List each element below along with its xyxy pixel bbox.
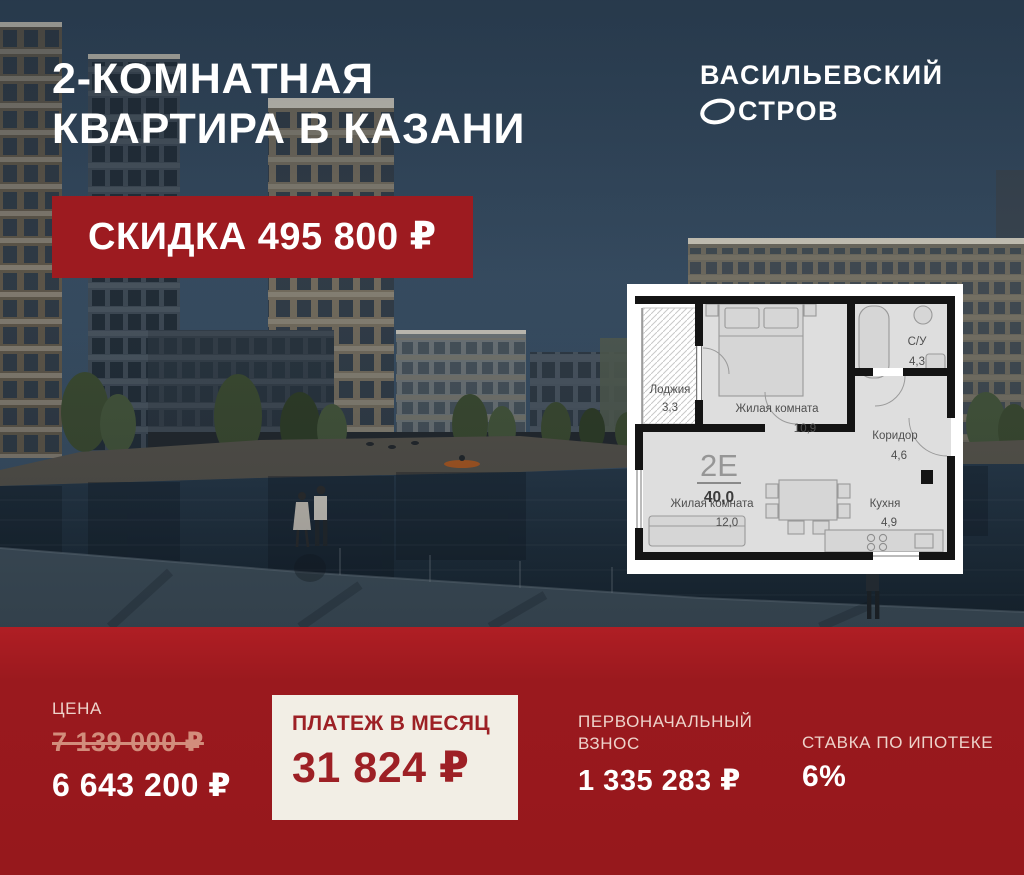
down-payment-label-line2: ВЗНОС: [578, 733, 752, 755]
total-area-label: 40,0: [704, 489, 734, 506]
title-line-2: КВАРТИРА В КАЗАНИ: [52, 104, 525, 154]
down-payment-label-line1: ПЕРВОНАЧАЛЬНЫЙ: [578, 711, 752, 733]
room-label-loggia: Лоджия: [650, 384, 691, 396]
new-price: 6 643 200 ₽: [52, 766, 231, 804]
logo-line-2-text: СТРОВ: [738, 96, 839, 127]
price-label: ЦЕНА: [52, 699, 231, 719]
mortgage-rate-label: СТАВКА ПО ИПОТЕКЕ: [802, 733, 993, 753]
banner: 2-КОМНАТНАЯ КВАРТИРА В КАЗАНИ ВАСИЛЬЕВСК…: [0, 0, 1024, 875]
room-area-bedroom: 10,9: [794, 423, 816, 435]
page-title: 2-КОМНАТНАЯ КВАРТИРА В КАЗАНИ: [52, 54, 525, 154]
mortgage-rate-value: 6%: [802, 760, 993, 794]
floor-plan: Лоджия 3,3 Жилая комната 10,9 С/У 4,3 Ко…: [627, 284, 963, 574]
monthly-payment-label: ПЛАТЕЖ В МЕСЯЦ: [292, 712, 518, 736]
brand-logo: ВАСИЛЬЕВСКИЙ СТРОВ: [700, 60, 944, 127]
room-label-bathroom: С/У: [908, 336, 928, 348]
room-area-bathroom: 4,3: [909, 356, 925, 368]
down-payment-block: ПЕРВОНАЧАЛЬНЫЙ ВЗНОС 1 335 283 ₽: [578, 711, 752, 798]
room-area-corridor: 4,6: [891, 450, 907, 462]
pricing-footer: ЦЕНА 7 139 000 ₽ 6 643 200 ₽ ПЛАТЕЖ В МЕ…: [0, 627, 1024, 875]
price-block: ЦЕНА 7 139 000 ₽ 6 643 200 ₽: [52, 699, 231, 804]
room-label-bedroom: Жилая комната: [735, 403, 819, 415]
monthly-payment-value: 31 824 ₽: [292, 743, 518, 793]
apartment-type-label: 2Е: [700, 448, 738, 483]
room-area-kitchen: 4,9: [881, 517, 897, 529]
down-payment-value: 1 335 283 ₽: [578, 763, 752, 798]
old-price: 7 139 000 ₽: [52, 727, 231, 758]
logo-line-2: СТРОВ: [700, 96, 944, 127]
monthly-payment-box: ПЛАТЕЖ В МЕСЯЦ 31 824 ₽: [272, 695, 518, 820]
room-label-corridor: Коридор: [872, 430, 917, 442]
discount-badge: СКИДКА 495 800 ₽: [52, 196, 473, 278]
mortgage-rate-block: СТАВКА ПО ИПОТЕКЕ 6%: [802, 733, 993, 794]
room-area-living: 12,0: [716, 517, 738, 529]
logo-o-icon: [697, 95, 737, 128]
title-line-1: 2-КОМНАТНАЯ: [52, 54, 525, 104]
logo-line-1: ВАСИЛЬЕВСКИЙ: [700, 60, 944, 91]
room-area-loggia: 3,3: [662, 402, 678, 414]
room-label-kitchen: Кухня: [870, 498, 901, 510]
